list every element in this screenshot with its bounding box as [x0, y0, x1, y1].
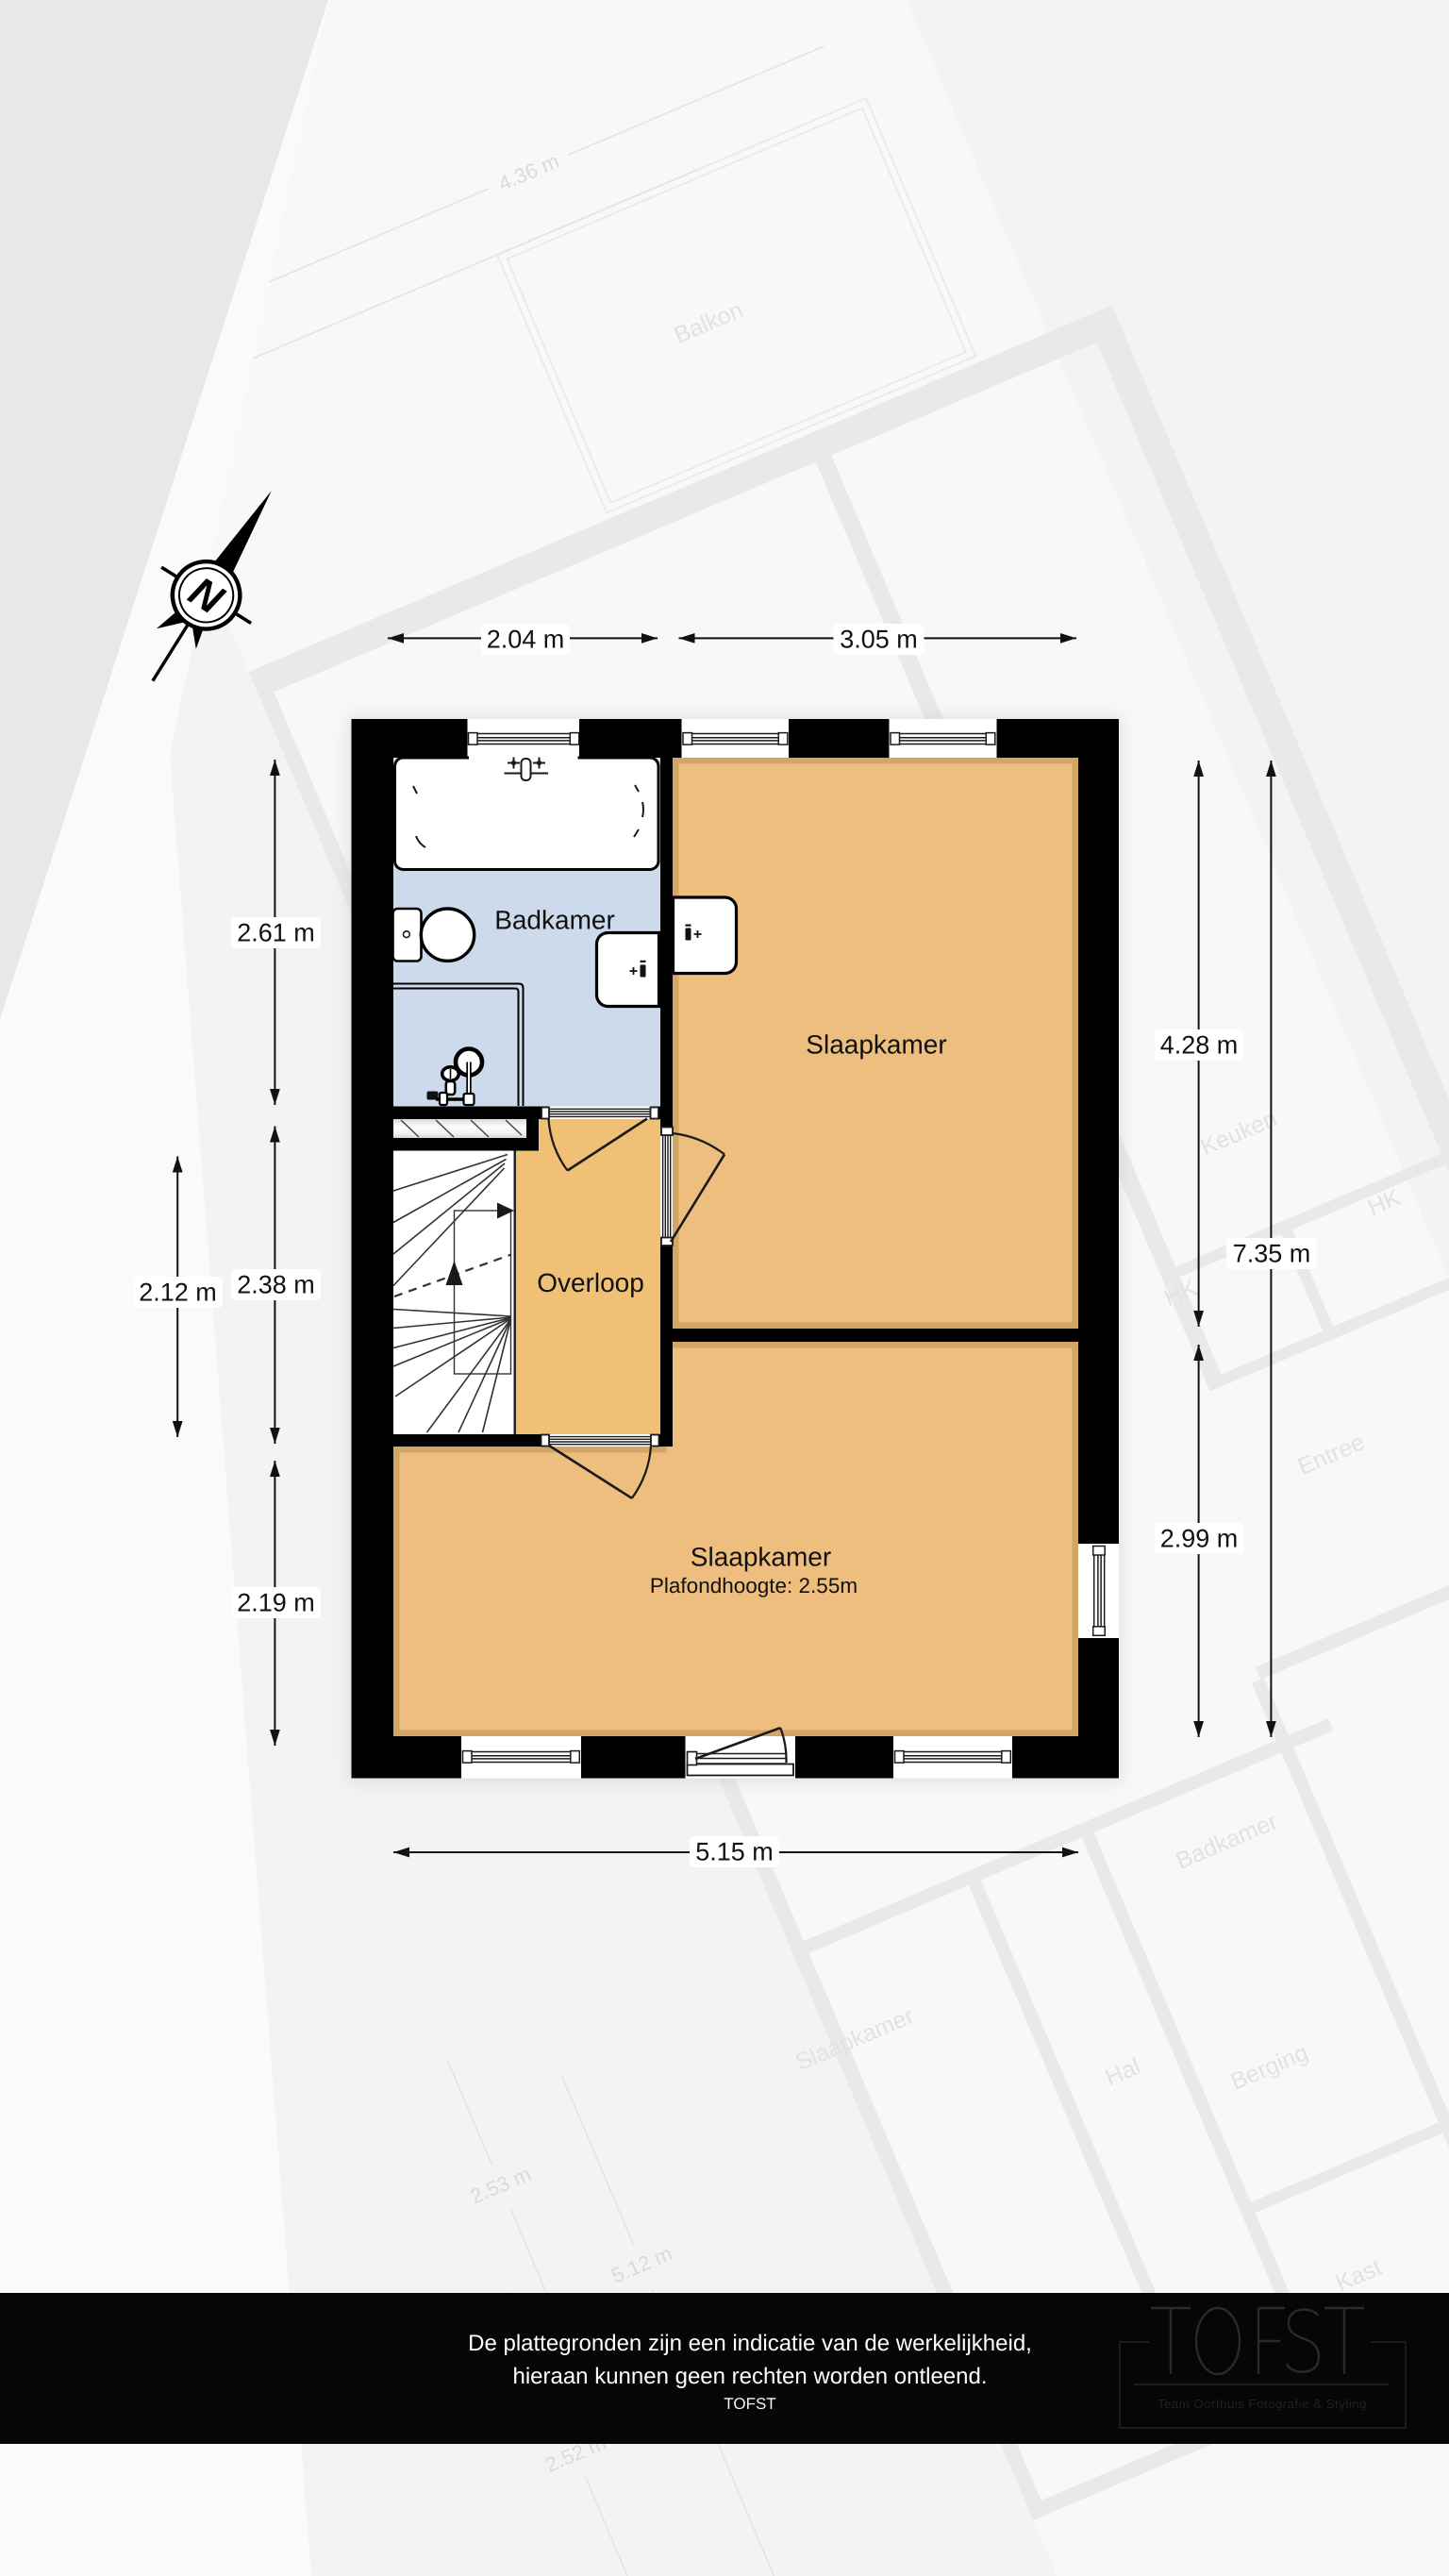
svg-text:2.99 m: 2.99 m [1160, 1525, 1239, 1553]
svg-text:TOFST: TOFST [724, 2395, 775, 2413]
svg-text:2.12 m: 2.12 m [139, 1279, 217, 1307]
svg-text:2.04 m: 2.04 m [487, 626, 565, 654]
svg-text:Slaapkamer: Slaapkamer [806, 1030, 946, 1060]
svg-text:Badkamer: Badkamer [494, 906, 615, 935]
svg-text:2.38 m: 2.38 m [237, 1271, 315, 1299]
svg-text:5.15 m: 5.15 m [695, 1838, 774, 1866]
svg-text:2.19 m: 2.19 m [237, 1589, 315, 1617]
svg-text:Slaapkamer: Slaapkamer [691, 1543, 831, 1572]
svg-text:Plafondhoogte: 2.55m: Plafondhoogte: 2.55m [650, 1574, 858, 1597]
svg-text:Team Oorthuis Fotografie & Sty: Team Oorthuis Fotografie & Styling [1158, 2397, 1367, 2411]
svg-text:2.61 m: 2.61 m [237, 919, 315, 947]
svg-text:7.35 m: 7.35 m [1233, 1240, 1311, 1268]
svg-text:De plattegronden zijn een indi: De plattegronden zijn een indicatie van … [468, 2331, 1032, 2356]
svg-text:Overloop: Overloop [537, 1268, 644, 1297]
svg-text:hieraan kunnen geen rechten wo: hieraan kunnen geen rechten worden ontle… [512, 2364, 987, 2389]
svg-text:3.05 m: 3.05 m [840, 626, 918, 654]
svg-text:4.28 m: 4.28 m [1160, 1031, 1239, 1060]
